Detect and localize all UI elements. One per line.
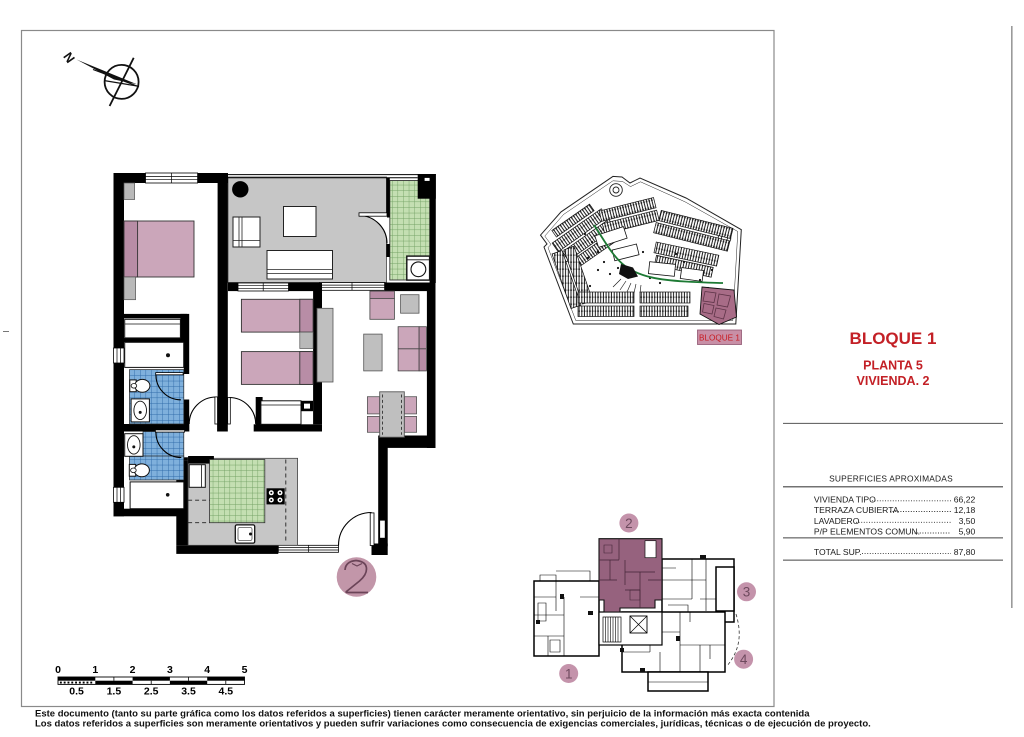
svg-text:VIVIENDA. 2: VIVIENDA. 2: [857, 374, 930, 388]
svg-text:4: 4: [204, 664, 210, 676]
svg-text:4.5: 4.5: [218, 686, 233, 698]
svg-text:3: 3: [743, 585, 751, 600]
svg-text:TOTAL SUP.: TOTAL SUP.: [814, 547, 862, 557]
svg-text:1.5: 1.5: [107, 686, 122, 698]
svg-text:N: N: [60, 49, 78, 65]
svg-text:87,80: 87,80: [954, 547, 976, 557]
svg-text:P/P ELEMENTOS COMUN.: P/P ELEMENTOS COMUN.: [814, 527, 920, 537]
svg-text:2: 2: [130, 664, 136, 676]
svg-text:66,22: 66,22: [954, 494, 976, 504]
svg-text:3,50: 3,50: [959, 516, 976, 526]
svg-text:BLOQUE 1: BLOQUE 1: [699, 334, 740, 343]
svg-text:2: 2: [625, 516, 633, 531]
svg-text:3: 3: [167, 664, 173, 676]
svg-text:1: 1: [565, 666, 573, 681]
svg-text:0.5: 0.5: [69, 686, 84, 698]
svg-text:TERRAZA CUBIERTA: TERRAZA CUBIERTA: [814, 505, 899, 515]
svg-text:12,18: 12,18: [954, 505, 976, 515]
svg-text:PLANTA 5: PLANTA 5: [863, 359, 923, 373]
svg-text:2.5: 2.5: [144, 686, 159, 698]
svg-text:5: 5: [242, 664, 248, 676]
svg-text:Los datos referidos a superfic: Los datos referidos a superficies son me…: [35, 719, 871, 730]
svg-text:LAVADERO: LAVADERO: [814, 516, 860, 526]
svg-text:VIVIENDA TIPO: VIVIENDA TIPO: [814, 494, 876, 504]
svg-text:5,90: 5,90: [959, 527, 976, 537]
svg-text:1: 1: [92, 664, 98, 676]
svg-text:3.5: 3.5: [181, 686, 196, 698]
svg-text:0: 0: [55, 664, 61, 676]
svg-text:BLOQUE 1: BLOQUE 1: [850, 329, 937, 348]
svg-text:SUPERFICIES APROXIMADAS: SUPERFICIES APROXIMADAS: [829, 474, 953, 484]
svg-text:4: 4: [740, 652, 748, 667]
